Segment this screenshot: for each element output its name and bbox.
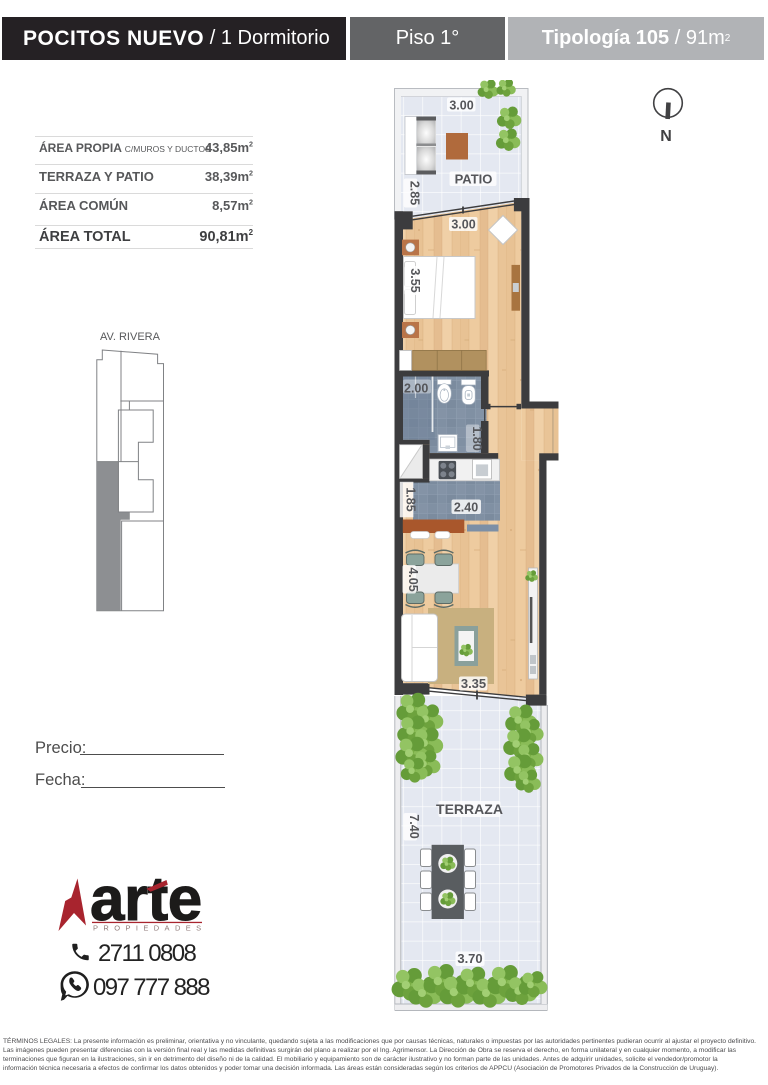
svg-text:PROPIEDADES: PROPIEDADES <box>93 924 207 933</box>
svg-text:TERRAZA: TERRAZA <box>436 801 503 817</box>
svg-text:7.40: 7.40 <box>407 814 421 838</box>
svg-text:3.00: 3.00 <box>449 99 473 113</box>
svg-text:2.85: 2.85 <box>408 181 422 205</box>
svg-text:AV. RIVERA: AV. RIVERA <box>100 331 161 343</box>
svg-text:PATIO: PATIO <box>455 172 493 187</box>
svg-text:2.00: 2.00 <box>404 382 428 396</box>
svg-text:N: N <box>660 128 672 145</box>
svg-text:3.00: 3.00 <box>451 218 475 232</box>
svg-text:1.80: 1.80 <box>470 426 484 450</box>
svg-text:2.40: 2.40 <box>454 501 478 515</box>
svg-text:1.85: 1.85 <box>404 487 418 511</box>
svg-text:4.05: 4.05 <box>406 567 420 591</box>
svg-text:3.35: 3.35 <box>461 676 486 691</box>
svg-text:3.55: 3.55 <box>408 268 422 292</box>
svg-text:3.70: 3.70 <box>457 951 482 966</box>
